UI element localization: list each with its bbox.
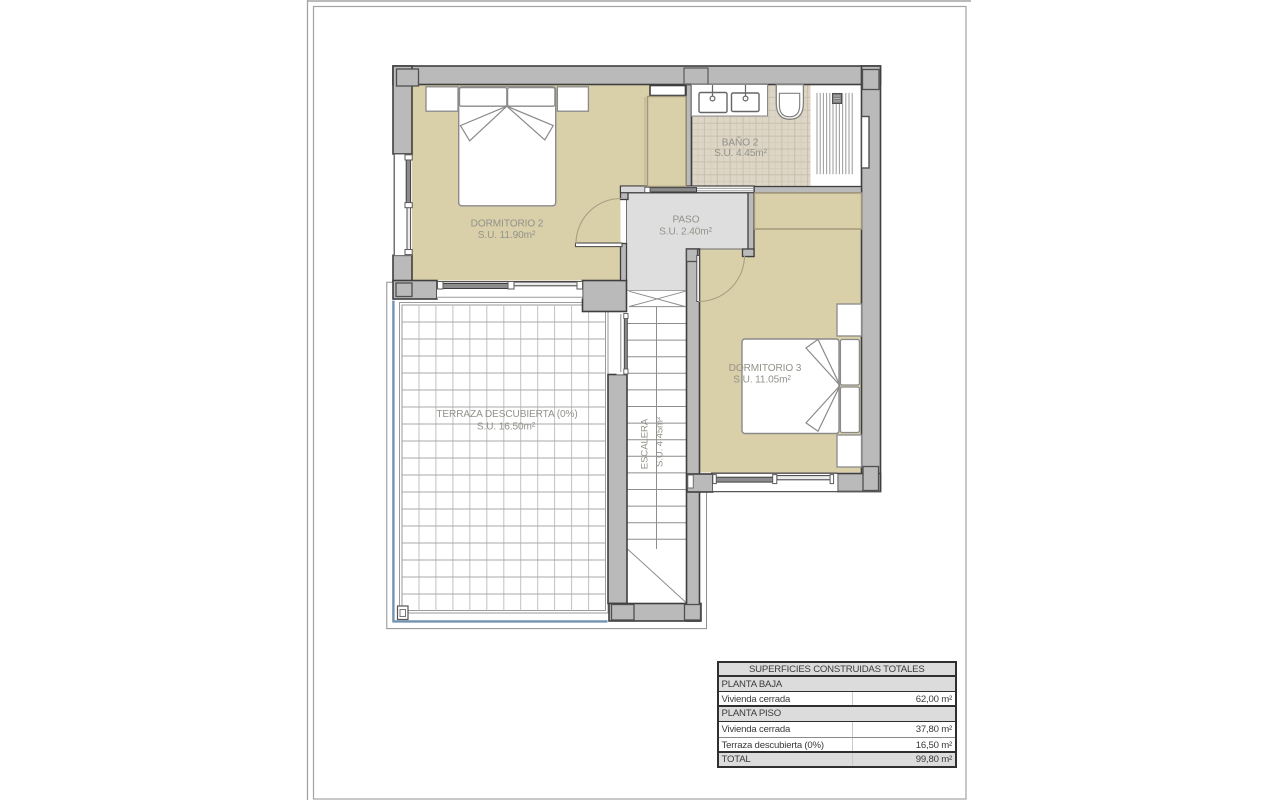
- svg-text:S.U. 11.05m²: S.U. 11.05m²: [733, 375, 791, 386]
- svg-text:TERRAZA DESCUBIERTA (0%): TERRAZA DESCUBIERTA (0%): [436, 409, 577, 420]
- svg-text:DORMITORIO 3: DORMITORIO 3: [729, 363, 802, 374]
- svg-text:S.U. 2.40m²: S.U. 2.40m²: [659, 227, 712, 238]
- svg-text:S.U. 16.50m²: S.U. 16.50m²: [477, 422, 536, 433]
- svg-text:DORMITORIO 2: DORMITORIO 2: [471, 219, 544, 230]
- svg-text:S.U. 11.90m²: S.U. 11.90m²: [478, 230, 536, 241]
- svg-text:PASO: PASO: [673, 215, 700, 226]
- svg-text:BAÑO 2: BAÑO 2: [722, 136, 759, 149]
- svg-text:ESCALERA: ESCALERA: [640, 418, 651, 469]
- svg-text:S.U. 4.45m²: S.U. 4.45m²: [714, 148, 767, 159]
- svg-text:S.U. 4.45m²: S.U. 4.45m²: [655, 416, 666, 467]
